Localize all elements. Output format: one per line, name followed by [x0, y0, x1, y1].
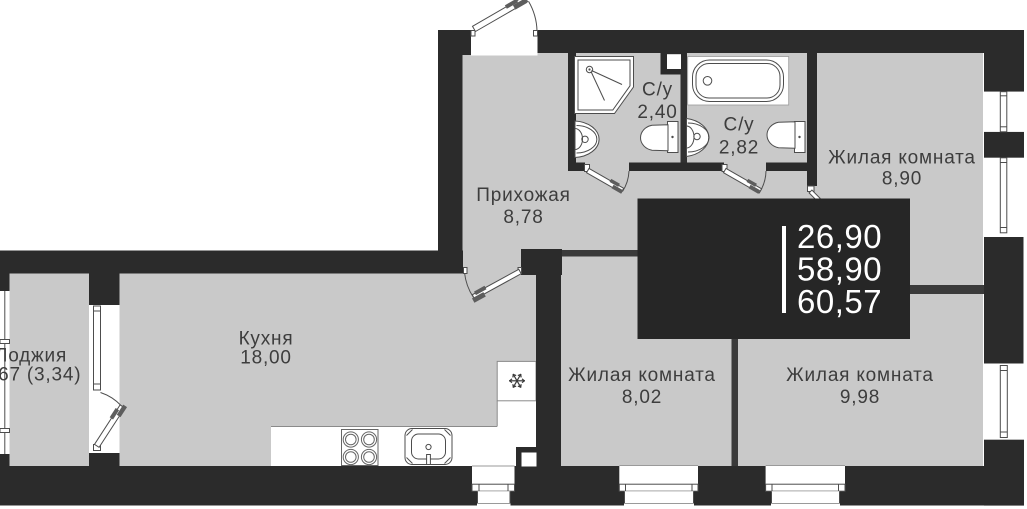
svg-text:Лоджия: Лоджия: [0, 346, 67, 367]
svg-text:С/у: С/у: [642, 80, 673, 101]
svg-text:8,78: 8,78: [503, 207, 543, 228]
svg-text:1,67 (3,34): 1,67 (3,34): [0, 365, 81, 386]
svg-text:58,90: 58,90: [797, 251, 882, 288]
svg-text:Жилая комната: Жилая комната: [828, 148, 976, 169]
svg-text:18,00: 18,00: [240, 348, 292, 369]
svg-text:Прихожая: Прихожая: [476, 185, 570, 206]
svg-text:26,90: 26,90: [797, 218, 882, 255]
svg-text:8,90: 8,90: [882, 169, 922, 190]
svg-text:9,98: 9,98: [840, 387, 880, 408]
svg-text:2,40: 2,40: [637, 102, 677, 123]
svg-text:С/у: С/у: [724, 115, 755, 136]
svg-text:60,57: 60,57: [797, 283, 882, 320]
svg-text:2,82: 2,82: [719, 138, 759, 159]
svg-text:Жилая комната: Жилая комната: [786, 365, 934, 386]
svg-text:Кухня: Кухня: [239, 329, 294, 350]
svg-text:8,02: 8,02: [622, 387, 662, 408]
svg-text:Жилая комната: Жилая комната: [568, 365, 716, 386]
